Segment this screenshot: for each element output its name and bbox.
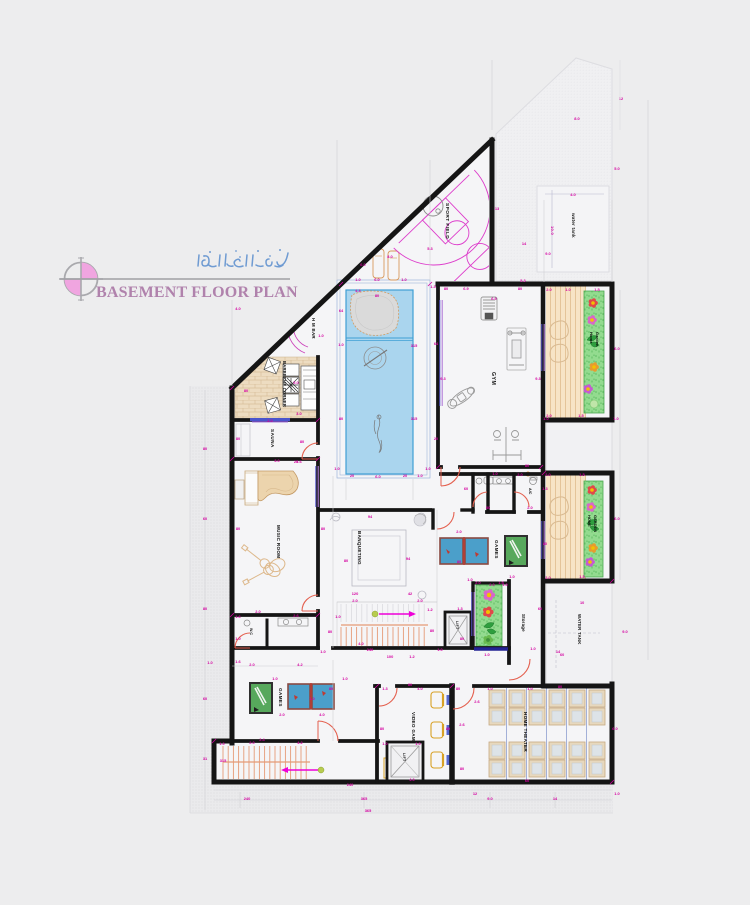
svg-text:2.0: 2.0 bbox=[475, 580, 480, 585]
svg-text:1.6: 1.6 bbox=[235, 614, 241, 619]
svg-text:1.0: 1.0 bbox=[467, 577, 472, 582]
svg-text:315: 315 bbox=[411, 343, 418, 348]
svg-text:1.2: 1.2 bbox=[427, 607, 433, 612]
svg-text:80: 80 bbox=[558, 684, 562, 689]
svg-text:4.0: 4.0 bbox=[417, 686, 422, 691]
svg-text:GYM: GYM bbox=[490, 372, 496, 385]
svg-text:2.6: 2.6 bbox=[459, 722, 465, 727]
svg-text:1.0: 1.0 bbox=[207, 660, 212, 665]
svg-text:HOME THEATER: HOME THEATER bbox=[523, 712, 528, 752]
svg-text:SAUNA: SAUNA bbox=[270, 429, 275, 448]
svg-text:120: 120 bbox=[352, 591, 359, 596]
svg-text:6.9: 6.9 bbox=[491, 296, 497, 301]
svg-text:80: 80 bbox=[203, 606, 207, 611]
svg-text:1.0: 1.0 bbox=[338, 342, 343, 347]
svg-text:315: 315 bbox=[411, 416, 418, 421]
svg-text:1.5: 1.5 bbox=[579, 472, 585, 477]
svg-text:1.0: 1.0 bbox=[415, 741, 420, 746]
svg-text:6.0: 6.0 bbox=[614, 516, 619, 521]
svg-text:BANQUETING: BANQUETING bbox=[357, 531, 362, 565]
svg-text:1.0: 1.0 bbox=[565, 287, 570, 292]
svg-text:1.0: 1.0 bbox=[335, 614, 340, 619]
svg-text:2.0: 2.0 bbox=[545, 472, 550, 477]
svg-text:4.0: 4.0 bbox=[235, 306, 240, 311]
svg-text:2.0: 2.0 bbox=[517, 472, 522, 477]
svg-text:6.0: 6.0 bbox=[612, 726, 617, 731]
svg-text:1.5: 1.5 bbox=[578, 413, 584, 418]
svg-text:80: 80 bbox=[339, 416, 343, 421]
svg-text:5.0: 5.0 bbox=[293, 380, 298, 385]
svg-text:5.3: 5.3 bbox=[520, 278, 526, 283]
svg-text:BARBECUE CORNER: BARBECUE CORNER bbox=[282, 361, 287, 407]
svg-text:1.0: 1.0 bbox=[219, 741, 224, 746]
svg-text:20: 20 bbox=[350, 473, 354, 478]
svg-text:2.0: 2.0 bbox=[489, 582, 494, 587]
svg-text:2.6: 2.6 bbox=[293, 613, 299, 618]
svg-text:2.0: 2.0 bbox=[546, 287, 551, 292]
svg-text:WATER TANK: WATER TANK bbox=[577, 614, 582, 645]
svg-text:1.3: 1.3 bbox=[457, 606, 463, 611]
svg-text:4.3: 4.3 bbox=[355, 288, 361, 293]
svg-text:1.5: 1.5 bbox=[594, 287, 600, 292]
svg-text:80: 80 bbox=[236, 526, 240, 531]
svg-text:2.0: 2.0 bbox=[456, 529, 461, 534]
svg-text:Storage: Storage bbox=[521, 614, 526, 632]
svg-text:60: 60 bbox=[525, 778, 529, 783]
svg-text:1.0: 1.0 bbox=[235, 636, 240, 641]
svg-text:3.0: 3.0 bbox=[296, 411, 301, 416]
svg-text:2.0: 2.0 bbox=[417, 598, 422, 603]
svg-text:1.0: 1.0 bbox=[509, 574, 514, 579]
svg-text:1.0: 1.0 bbox=[334, 466, 339, 471]
svg-text:HOME: HOME bbox=[587, 515, 591, 527]
svg-text:80: 80 bbox=[344, 558, 348, 563]
svg-text:4.0: 4.0 bbox=[409, 777, 414, 782]
svg-text:80: 80 bbox=[518, 286, 522, 291]
svg-text:1.3: 1.3 bbox=[542, 486, 548, 491]
svg-text:80: 80 bbox=[300, 439, 304, 444]
svg-text:1.3: 1.3 bbox=[430, 284, 436, 289]
svg-text:9.0: 9.0 bbox=[545, 251, 550, 256]
svg-text:80: 80 bbox=[203, 446, 207, 451]
svg-text:1.0: 1.0 bbox=[401, 277, 406, 282]
svg-text:80: 80 bbox=[486, 505, 490, 510]
svg-text:GAMES: GAMES bbox=[278, 688, 283, 707]
svg-text:1.0: 1.0 bbox=[614, 791, 619, 796]
svg-text:1.0: 1.0 bbox=[382, 741, 387, 746]
svg-text:2.0: 2.0 bbox=[352, 598, 357, 603]
svg-text:6.0: 6.0 bbox=[360, 262, 365, 267]
svg-text:80: 80 bbox=[543, 541, 547, 546]
svg-text:water tank: water tank bbox=[571, 212, 576, 238]
svg-text:1.0: 1.0 bbox=[309, 696, 314, 701]
svg-text:80: 80 bbox=[328, 629, 332, 634]
svg-text:365: 365 bbox=[365, 808, 372, 813]
svg-text:5.0: 5.0 bbox=[614, 166, 619, 171]
svg-text:9.3: 9.3 bbox=[440, 376, 446, 381]
svg-text:60: 60 bbox=[203, 696, 207, 701]
svg-text:4.0: 4.0 bbox=[319, 712, 324, 717]
svg-text:1.0: 1.0 bbox=[355, 277, 360, 282]
svg-text:8.0: 8.0 bbox=[574, 116, 579, 121]
svg-text:80: 80 bbox=[444, 286, 448, 291]
svg-text:9.3: 9.3 bbox=[535, 376, 541, 381]
svg-text:80: 80 bbox=[244, 388, 248, 393]
svg-text:6.0: 6.0 bbox=[374, 277, 379, 282]
svg-text:10.0: 10.0 bbox=[550, 226, 555, 235]
svg-text:1.5: 1.5 bbox=[579, 574, 585, 579]
svg-text:4.0: 4.0 bbox=[358, 641, 363, 646]
svg-text:2.0: 2.0 bbox=[267, 418, 272, 423]
svg-text:3.0: 3.0 bbox=[274, 458, 279, 463]
svg-text:1.0: 1.0 bbox=[417, 473, 422, 478]
svg-text:80: 80 bbox=[456, 686, 460, 691]
svg-text:1.0: 1.0 bbox=[318, 333, 323, 338]
svg-text:365: 365 bbox=[361, 796, 368, 801]
svg-text:1.0: 1.0 bbox=[425, 466, 430, 471]
svg-text:80: 80 bbox=[236, 436, 240, 441]
svg-text:315: 315 bbox=[220, 758, 227, 763]
svg-text:80: 80 bbox=[329, 686, 333, 691]
svg-text:6.0: 6.0 bbox=[614, 346, 619, 351]
svg-text:8.0: 8.0 bbox=[387, 254, 392, 259]
svg-text:MUSIC ROOM: MUSIC ROOM bbox=[276, 525, 281, 558]
svg-text:80: 80 bbox=[375, 293, 379, 298]
svg-text:1.0: 1.0 bbox=[437, 647, 442, 652]
svg-text:A/C: A/C bbox=[528, 488, 532, 495]
svg-text:H M BAR: H M BAR bbox=[311, 318, 316, 339]
svg-text:6.9: 6.9 bbox=[463, 286, 469, 291]
svg-text:2.0: 2.0 bbox=[255, 609, 260, 614]
svg-text:1.2: 1.2 bbox=[409, 654, 415, 659]
svg-text:2.0: 2.0 bbox=[249, 662, 254, 667]
svg-text:1.0: 1.0 bbox=[613, 416, 618, 421]
svg-text:1.0: 1.0 bbox=[320, 649, 325, 654]
svg-text:1.0: 1.0 bbox=[487, 686, 492, 691]
svg-text:6.0: 6.0 bbox=[375, 474, 380, 479]
svg-text:9.0: 9.0 bbox=[622, 629, 627, 634]
svg-text:240: 240 bbox=[347, 782, 354, 787]
svg-text:SPORT FIELD: SPORT FIELD bbox=[444, 203, 450, 239]
svg-text:1.0: 1.0 bbox=[272, 676, 277, 681]
svg-text:9.0: 9.0 bbox=[487, 796, 492, 801]
svg-text:60: 60 bbox=[203, 516, 207, 521]
svg-text:100: 100 bbox=[387, 654, 394, 659]
svg-text:240: 240 bbox=[244, 796, 251, 801]
svg-text:4.2: 4.2 bbox=[297, 740, 303, 745]
svg-text:4.2: 4.2 bbox=[297, 662, 303, 667]
svg-text:1.0: 1.0 bbox=[543, 416, 548, 421]
svg-text:1.0: 1.0 bbox=[492, 471, 497, 476]
svg-text:60: 60 bbox=[538, 606, 542, 611]
svg-text:60: 60 bbox=[464, 486, 468, 491]
svg-text:60: 60 bbox=[560, 653, 564, 657]
svg-text:Garden: Garden bbox=[595, 332, 600, 347]
svg-text:20: 20 bbox=[434, 436, 438, 441]
svg-text:Home: Home bbox=[589, 332, 594, 344]
svg-text:BASEMENT FLOOR PLAN: BASEMENT FLOOR PLAN bbox=[96, 284, 298, 301]
svg-text:1.3: 1.3 bbox=[382, 686, 388, 691]
svg-text:2.4: 2.4 bbox=[259, 737, 265, 742]
svg-text:2.0: 2.0 bbox=[545, 575, 550, 580]
svg-text:80: 80 bbox=[408, 682, 412, 687]
svg-text:1.0: 1.0 bbox=[530, 646, 535, 651]
svg-text:80: 80 bbox=[525, 463, 529, 468]
svg-text:5.3: 5.3 bbox=[427, 246, 433, 251]
svg-text:1.0: 1.0 bbox=[342, 676, 347, 681]
svg-text:80: 80 bbox=[380, 726, 384, 731]
svg-text:1.5: 1.5 bbox=[498, 580, 504, 585]
svg-text:20: 20 bbox=[403, 473, 407, 478]
svg-text:LIFT: LIFT bbox=[455, 621, 459, 630]
svg-text:10: 10 bbox=[580, 601, 584, 605]
svg-text:2.0: 2.0 bbox=[279, 712, 284, 717]
svg-text:2.0: 2.0 bbox=[527, 505, 532, 510]
svg-text:80: 80 bbox=[460, 636, 464, 641]
svg-text:1.0: 1.0 bbox=[484, 652, 489, 657]
svg-text:80: 80 bbox=[460, 766, 464, 771]
svg-text:240: 240 bbox=[367, 647, 374, 652]
svg-text:GAMES: GAMES bbox=[494, 540, 499, 559]
svg-text:LIFT: LIFT bbox=[402, 753, 406, 762]
svg-text:1.0: 1.0 bbox=[527, 686, 532, 691]
svg-text:80: 80 bbox=[430, 628, 434, 633]
svg-text:80: 80 bbox=[321, 526, 325, 531]
svg-text:80: 80 bbox=[457, 559, 461, 564]
svg-text:4.0: 4.0 bbox=[570, 192, 576, 197]
svg-text:3.6: 3.6 bbox=[296, 459, 302, 464]
svg-text:W.C: W.C bbox=[249, 628, 253, 635]
svg-text:1.6: 1.6 bbox=[235, 659, 241, 664]
svg-text:2.0: 2.0 bbox=[249, 740, 254, 745]
svg-text:GARDEN: GARDEN bbox=[593, 515, 597, 532]
svg-text:80: 80 bbox=[446, 726, 450, 731]
svg-text:2.6: 2.6 bbox=[474, 699, 480, 704]
